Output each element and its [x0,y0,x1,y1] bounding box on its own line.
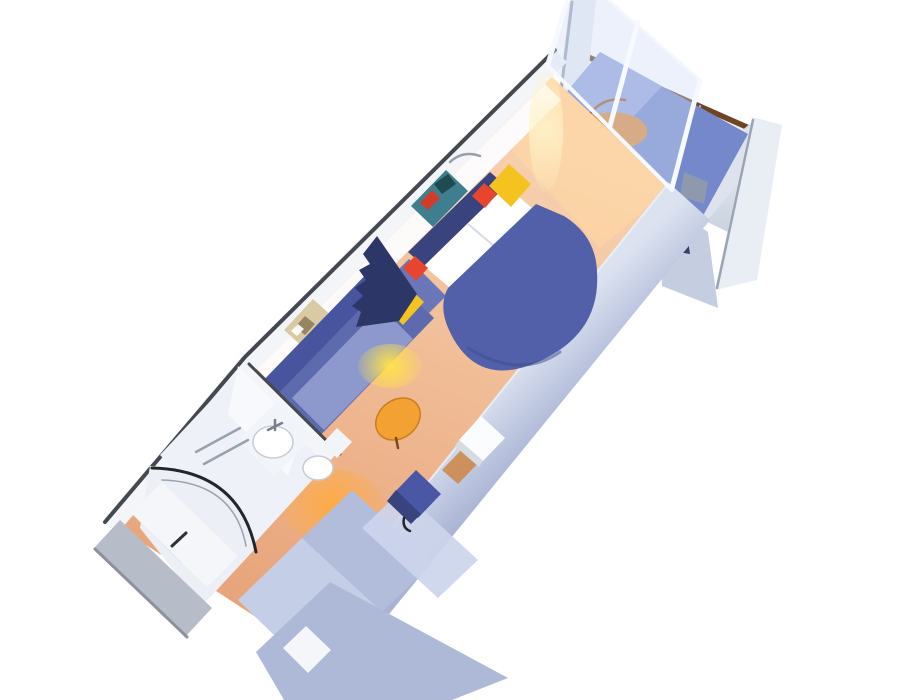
toilet-bowl [303,456,333,480]
stateroom-floorplan-svg [0,0,900,700]
stateroom-rendering [0,0,900,700]
washbasin [253,426,293,458]
nightstand-glow [358,344,422,388]
sunlight-glow [529,68,563,192]
